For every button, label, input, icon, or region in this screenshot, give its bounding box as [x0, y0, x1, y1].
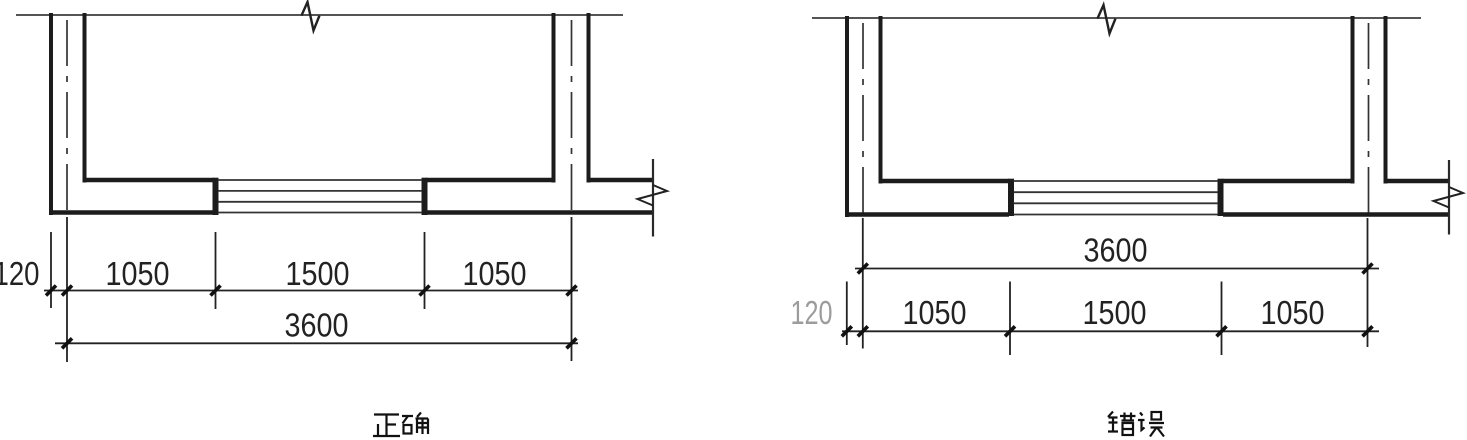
svg-text:1500: 1500 — [1083, 294, 1147, 331]
svg-text:120: 120 — [791, 294, 833, 331]
svg-text:1050: 1050 — [463, 255, 527, 292]
svg-text:1050: 1050 — [903, 294, 967, 331]
svg-text:3600: 3600 — [285, 307, 349, 344]
svg-text:1500: 1500 — [286, 255, 350, 292]
svg-text:1050: 1050 — [106, 255, 170, 292]
svg-text:3600: 3600 — [1084, 232, 1148, 269]
svg-text:1050: 1050 — [1261, 294, 1325, 331]
svg-text:120: 120 — [0, 255, 40, 292]
